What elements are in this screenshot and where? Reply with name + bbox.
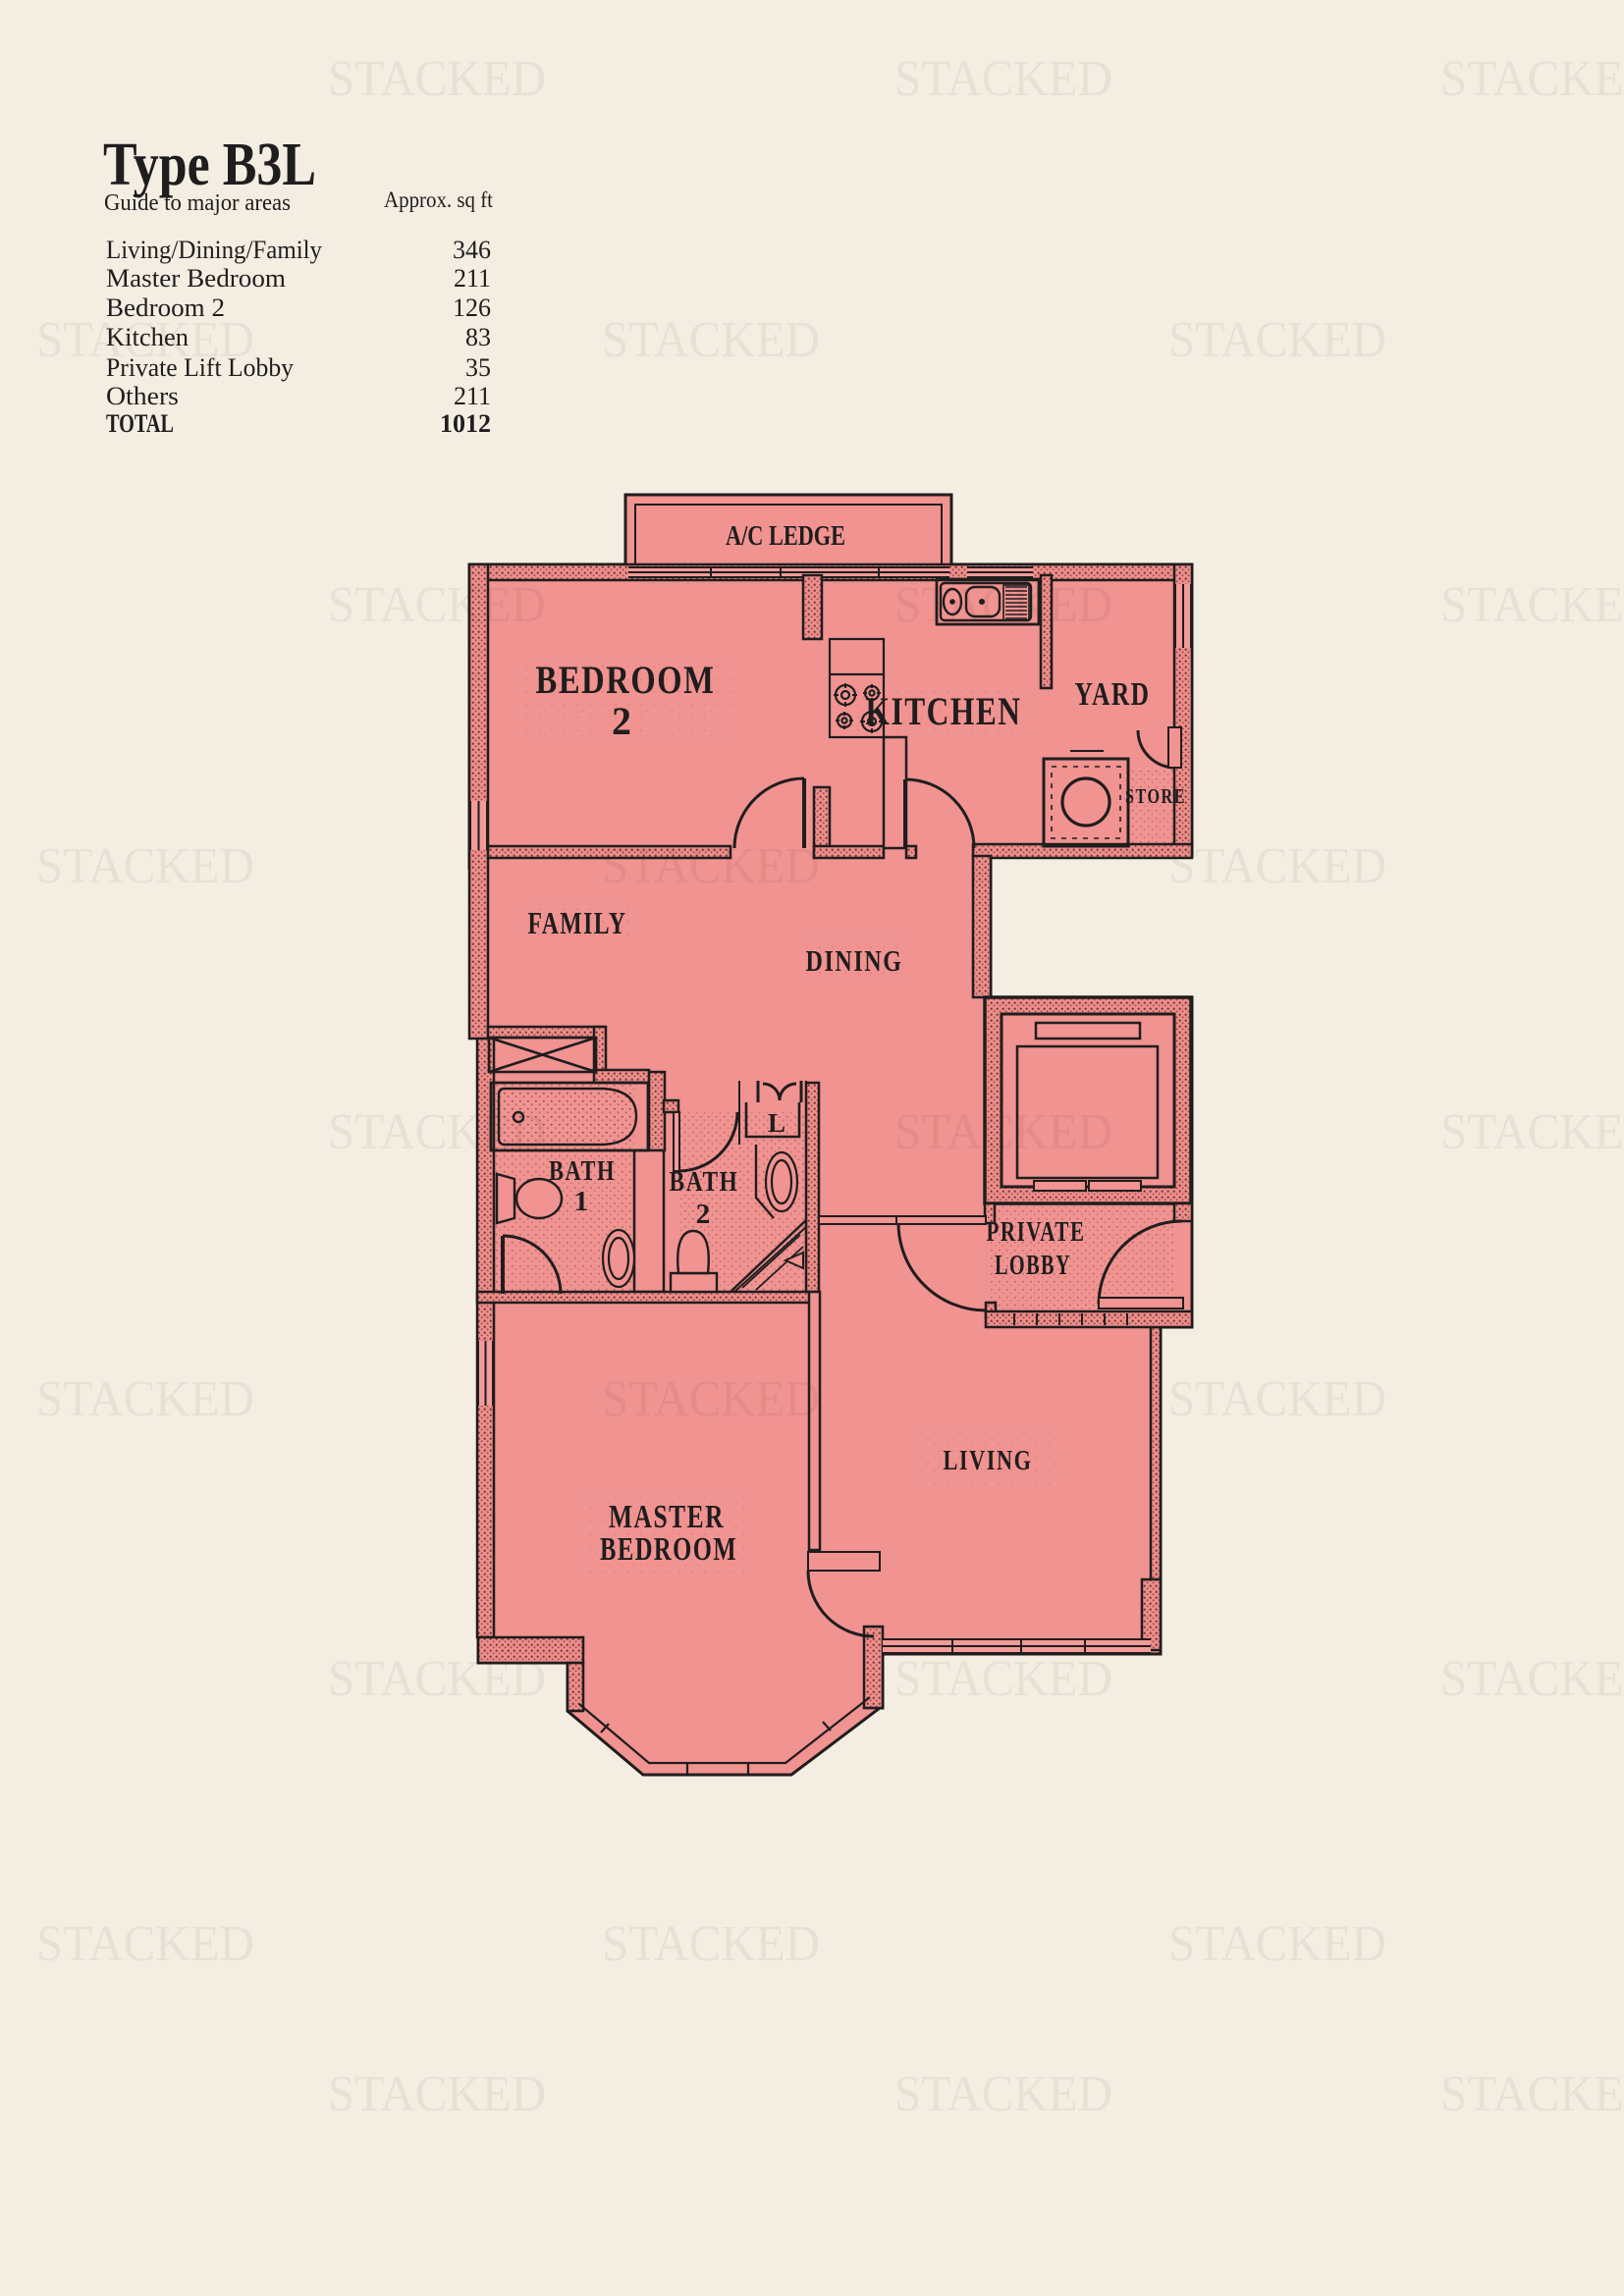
svg-text:BATH: BATH bbox=[670, 1166, 739, 1198]
svg-text:83: 83 bbox=[465, 323, 491, 351]
svg-text:STACKED: STACKED bbox=[1168, 312, 1386, 368]
svg-text:STACKED: STACKED bbox=[1168, 1916, 1386, 1972]
svg-text:STACKED: STACKED bbox=[602, 1916, 820, 1972]
svg-text:STACKED: STACKED bbox=[1440, 1104, 1624, 1160]
svg-text:TOTAL: TOTAL bbox=[106, 409, 174, 438]
svg-text:KITCHEN: KITCHEN bbox=[866, 689, 1022, 733]
svg-text:FAMILY: FAMILY bbox=[528, 905, 627, 940]
svg-text:BEDROOM: BEDROOM bbox=[600, 1531, 737, 1568]
svg-text:Master Bedroom: Master Bedroom bbox=[106, 264, 286, 293]
svg-text:35: 35 bbox=[465, 353, 491, 382]
svg-text:A/C LEDGE: A/C LEDGE bbox=[726, 521, 845, 552]
svg-text:STACKED: STACKED bbox=[602, 838, 820, 894]
svg-text:Guide to major areas: Guide to major areas bbox=[104, 190, 291, 216]
svg-text:Approx. sq ft: Approx. sq ft bbox=[384, 187, 494, 212]
svg-text:STACKED: STACKED bbox=[1440, 51, 1624, 107]
svg-text:Living/Dining/Family: Living/Dining/Family bbox=[106, 236, 322, 264]
svg-text:STACKED: STACKED bbox=[894, 1651, 1112, 1707]
svg-text:LIVING: LIVING bbox=[944, 1445, 1033, 1476]
svg-text:STACKED: STACKED bbox=[328, 1104, 546, 1160]
svg-text:STACKED: STACKED bbox=[36, 838, 254, 894]
svg-text:Type B3L: Type B3L bbox=[103, 132, 316, 198]
svg-text:STACKED: STACKED bbox=[36, 1371, 254, 1427]
svg-text:DINING: DINING bbox=[806, 943, 903, 978]
svg-text:2: 2 bbox=[612, 699, 631, 743]
svg-text:1: 1 bbox=[574, 1186, 589, 1217]
svg-text:STACKED: STACKED bbox=[1168, 1371, 1386, 1427]
svg-text:STACKED: STACKED bbox=[328, 577, 546, 633]
svg-text:PRIVATE: PRIVATE bbox=[987, 1217, 1086, 1248]
svg-text:STACKED: STACKED bbox=[1168, 838, 1386, 894]
svg-text:STACKED: STACKED bbox=[1440, 1651, 1624, 1707]
svg-text:STACKED: STACKED bbox=[894, 51, 1112, 107]
svg-text:STACKED: STACKED bbox=[894, 577, 1112, 633]
svg-text:YARD: YARD bbox=[1075, 676, 1151, 713]
svg-text:MASTER: MASTER bbox=[609, 1499, 725, 1535]
svg-text:STACKED: STACKED bbox=[36, 1916, 254, 1972]
svg-text:STACKED: STACKED bbox=[894, 2066, 1112, 2122]
svg-text:BEDROOM: BEDROOM bbox=[536, 658, 716, 702]
svg-text:211: 211 bbox=[454, 382, 491, 410]
svg-text:BATH: BATH bbox=[549, 1155, 616, 1187]
svg-text:STACKED: STACKED bbox=[328, 51, 546, 107]
svg-text:2: 2 bbox=[696, 1199, 711, 1230]
svg-text:211: 211 bbox=[454, 264, 491, 293]
svg-text:STACKED: STACKED bbox=[1440, 2066, 1624, 2122]
svg-text:STACKED: STACKED bbox=[894, 1104, 1112, 1160]
svg-text:STACKED: STACKED bbox=[602, 312, 820, 368]
svg-text:STACKED: STACKED bbox=[328, 1651, 546, 1707]
svg-text:STACKED: STACKED bbox=[36, 312, 254, 368]
svg-text:346: 346 bbox=[453, 236, 491, 264]
svg-text:L: L bbox=[768, 1108, 785, 1138]
svg-text:1012: 1012 bbox=[440, 409, 491, 438]
svg-text:STACKED: STACKED bbox=[1440, 577, 1624, 633]
svg-text:LOBBY: LOBBY bbox=[995, 1251, 1071, 1281]
svg-text:STORE: STORE bbox=[1125, 784, 1186, 808]
svg-text:STACKED: STACKED bbox=[328, 2066, 546, 2122]
svg-text:Others: Others bbox=[106, 382, 179, 410]
svg-text:STACKED: STACKED bbox=[602, 1371, 820, 1427]
svg-text:126: 126 bbox=[453, 294, 491, 322]
